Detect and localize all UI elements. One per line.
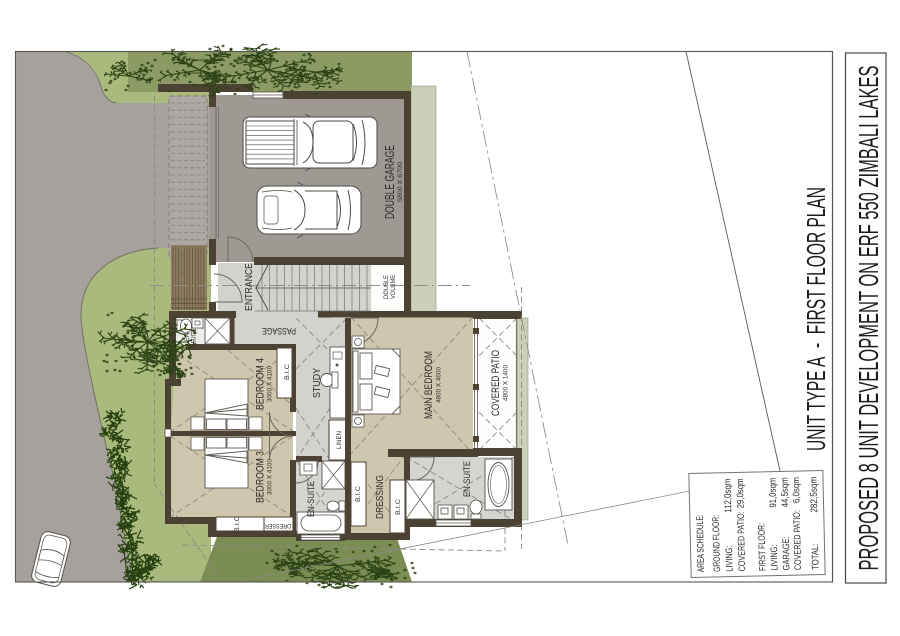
svg-text:GROUND FLOOR:: GROUND FLOOR: bbox=[711, 515, 723, 572]
svg-text:LIVING:: LIVING: bbox=[724, 546, 736, 572]
svg-text:6,0sqm: 6,0sqm bbox=[791, 477, 803, 503]
svg-text:COVERED PATIO: COVERED PATIO bbox=[490, 350, 502, 416]
svg-text:91,0sqm: 91,0sqm bbox=[767, 477, 779, 507]
svg-text:PASSAGE: PASSAGE bbox=[262, 325, 296, 336]
svg-text:FIRST FLOOR:: FIRST FLOOR: bbox=[756, 523, 768, 571]
svg-text:B.I.C: B.I.C bbox=[355, 486, 362, 502]
svg-text:DOUBLE: DOUBLE bbox=[383, 274, 390, 299]
svg-text:DRESSING: DRESSING bbox=[375, 475, 386, 519]
svg-text:PROPOSED 8 UNIT DEVELOPMENT ON: PROPOSED 8 UNIT DEVELOPMENT ON ERF 550 Z… bbox=[853, 66, 884, 571]
svg-text:STUDY: STUDY bbox=[312, 368, 323, 398]
svg-text:4800 X 4600: 4800 X 4600 bbox=[436, 367, 443, 403]
svg-text:282,5sqm: 282,5sqm bbox=[808, 477, 820, 513]
svg-text:EN-SUITE: EN-SUITE bbox=[306, 481, 316, 517]
svg-text:5800 X 6700: 5800 X 6700 bbox=[397, 162, 404, 202]
svg-text:DRESSER: DRESSER bbox=[265, 522, 291, 529]
svg-text:UNIT TYPE A - FIRST FLOOR PL: UNIT TYPE A - FIRST FLOOR PLAN bbox=[801, 187, 831, 451]
svg-text:SUITE: SUITE bbox=[192, 329, 198, 344]
svg-text:AREA SCHEDULE:: AREA SCHEDULE: bbox=[695, 514, 707, 572]
svg-text:EN-: EN- bbox=[185, 331, 191, 341]
svg-text:29,0sqm: 29,0sqm bbox=[735, 478, 747, 508]
svg-text:COVERED PATIO:: COVERED PATIO: bbox=[792, 510, 804, 570]
svg-text:EN-SUITE: EN-SUITE bbox=[462, 461, 472, 497]
svg-text:LIVING:: LIVING: bbox=[769, 544, 781, 570]
svg-text:3000 X 4100: 3000 X 4100 bbox=[267, 366, 274, 402]
svg-text:BEDROOM 3: BEDROOM 3 bbox=[255, 451, 267, 503]
svg-text:B.I.C: B.I.C bbox=[234, 516, 241, 532]
svg-text:44,5sqm: 44,5sqm bbox=[779, 477, 791, 507]
svg-text:B.I.C: B.I.C bbox=[395, 499, 402, 515]
svg-text:VOLUME: VOLUME bbox=[390, 274, 397, 299]
svg-text:DOUBLE GARAGE: DOUBLE GARAGE bbox=[382, 145, 397, 219]
svg-text:ENTRANCE: ENTRANCE bbox=[243, 263, 255, 311]
svg-text:4800 X 1400: 4800 X 1400 bbox=[503, 365, 510, 401]
svg-text:GARAGE:: GARAGE: bbox=[781, 536, 793, 570]
svg-text:3000 X 4100: 3000 X 4100 bbox=[267, 459, 274, 495]
svg-text:COVERED PATIO:: COVERED PATIO: bbox=[736, 511, 748, 571]
svg-text:MAIN BEDROOM: MAIN BEDROOM bbox=[423, 351, 435, 419]
svg-text:BEDROOM 4: BEDROOM 4 bbox=[255, 358, 267, 410]
svg-text:LINEN: LINEN bbox=[336, 431, 343, 449]
svg-text:112,0sqm: 112,0sqm bbox=[722, 478, 734, 512]
svg-text:TOTAL:: TOTAL: bbox=[810, 544, 822, 570]
svg-text:B.I.C: B.I.C bbox=[284, 364, 291, 380]
